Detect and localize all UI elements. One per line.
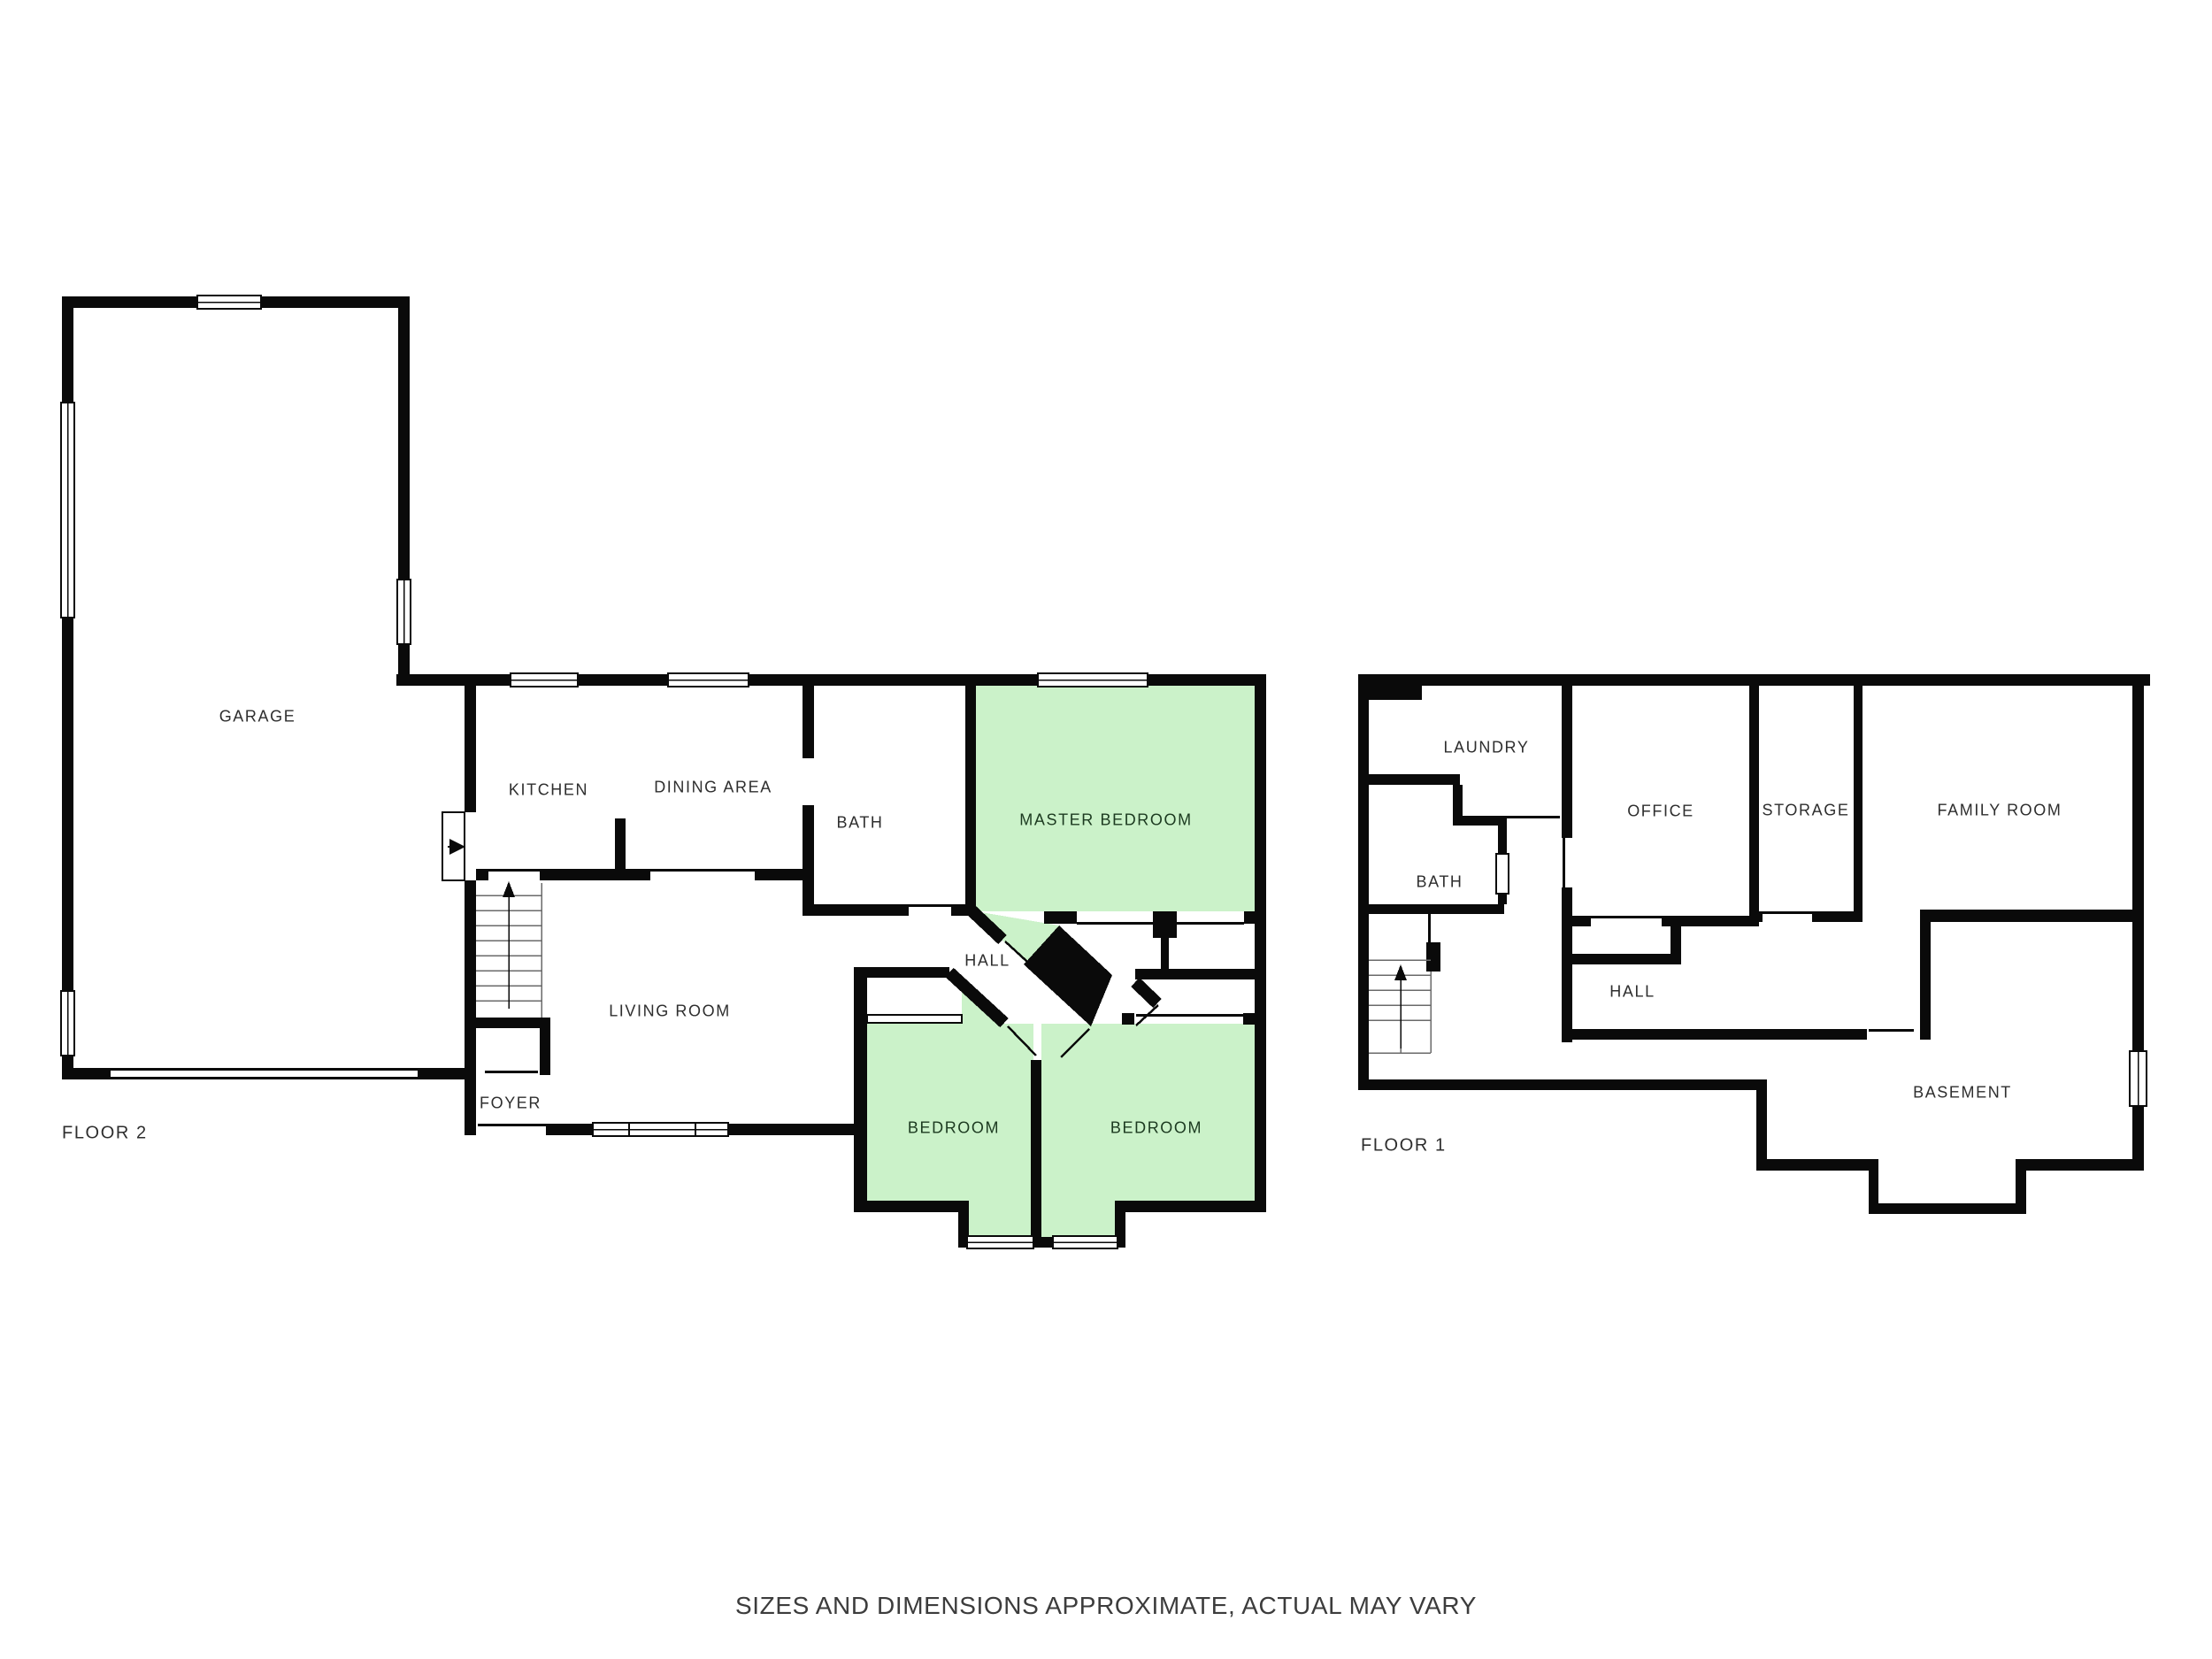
room-label-basement: BASEMENT [1913,1084,2012,1102]
room-label-bath-floor2: BATH [836,814,883,833]
room-label-hall-floor1: HALL [1609,983,1655,1002]
stairs-floor1 [1369,960,1431,1053]
room-label-bath-floor1: BATH [1416,873,1463,892]
closet-front-icon [867,1015,962,1023]
floor2-title: FLOOR 2 [62,1124,148,1144]
room-label-bedroom-right: BEDROOM [1110,1119,1202,1138]
floorplan-drawing [0,0,2212,1659]
stairs-floor2 [476,881,541,1018]
floor1-title: FLOOR 1 [1361,1136,1447,1156]
room-label-laundry: LAUNDRY [1444,739,1530,757]
room-label-office: OFFICE [1627,803,1694,821]
window-icon [2130,1051,2147,1106]
floor1-windows [1496,854,2147,1106]
door-swing-arrow [442,812,465,880]
window-icon [668,673,749,687]
window-icon [967,1236,1033,1248]
room-label-living-room: LIVING ROOM [609,1002,731,1021]
room-label-foyer: FOYER [480,1094,541,1113]
window-icon [593,1123,728,1136]
window-icon [1496,854,1509,894]
garage-door-icon [111,1069,418,1079]
window-icon [61,403,74,618]
floorplan-canvas: GARAGE KITCHEN DINING AREA BATH MASTER B… [0,0,2212,1659]
room-label-hall-floor2: HALL [964,952,1010,971]
room-label-master-bedroom: MASTER BEDROOM [1019,811,1192,830]
room-label-bedroom-left: BEDROOM [908,1119,1000,1138]
window-icon [61,991,74,1056]
room-label-kitchen: KITCHEN [509,781,588,800]
window-icon [511,673,578,687]
disclaimer-text: SIZES AND DIMENSIONS APPROXIMATE, ACTUAL… [735,1592,1477,1620]
window-icon [1053,1236,1118,1248]
window-icon [197,296,261,309]
room-label-storage: STORAGE [1763,802,1850,820]
stair-direction-arrow [503,881,515,897]
room-label-family-room: FAMILY ROOM [1938,802,2062,820]
window-icon [1038,673,1148,687]
room-label-dining-area: DINING AREA [654,779,772,797]
room-label-garage: GARAGE [219,708,296,726]
floor2-geometry [61,296,1266,1248]
stair-direction-arrow [1394,964,1407,980]
window-icon [397,580,411,644]
